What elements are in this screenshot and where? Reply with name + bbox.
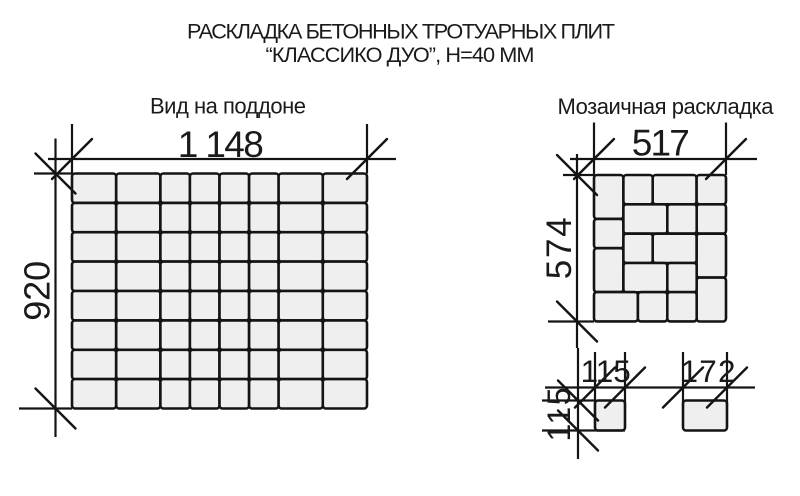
- svg-text:574: 574: [540, 217, 579, 279]
- svg-text:“КЛАССИКО ДУО”, Н=40 ММ: “КЛАССИКО ДУО”, Н=40 ММ: [266, 42, 535, 67]
- svg-text:РАСКЛАДКА БЕТОННЫХ ТРОТУАРНЫХ: РАСКЛАДКА БЕТОННЫХ ТРОТУАРНЫХ ПЛИТ: [187, 19, 615, 44]
- svg-text:115: 115: [541, 388, 577, 442]
- svg-text:115: 115: [581, 353, 631, 389]
- svg-text:Мозаичная раскладка: Мозаичная раскладка: [558, 94, 775, 119]
- svg-text:920: 920: [17, 261, 58, 321]
- svg-text:1 148: 1 148: [178, 124, 264, 165]
- svg-text:172: 172: [681, 353, 736, 389]
- svg-text:Вид на поддоне: Вид на поддоне: [150, 93, 306, 118]
- svg-text:517: 517: [632, 123, 690, 164]
